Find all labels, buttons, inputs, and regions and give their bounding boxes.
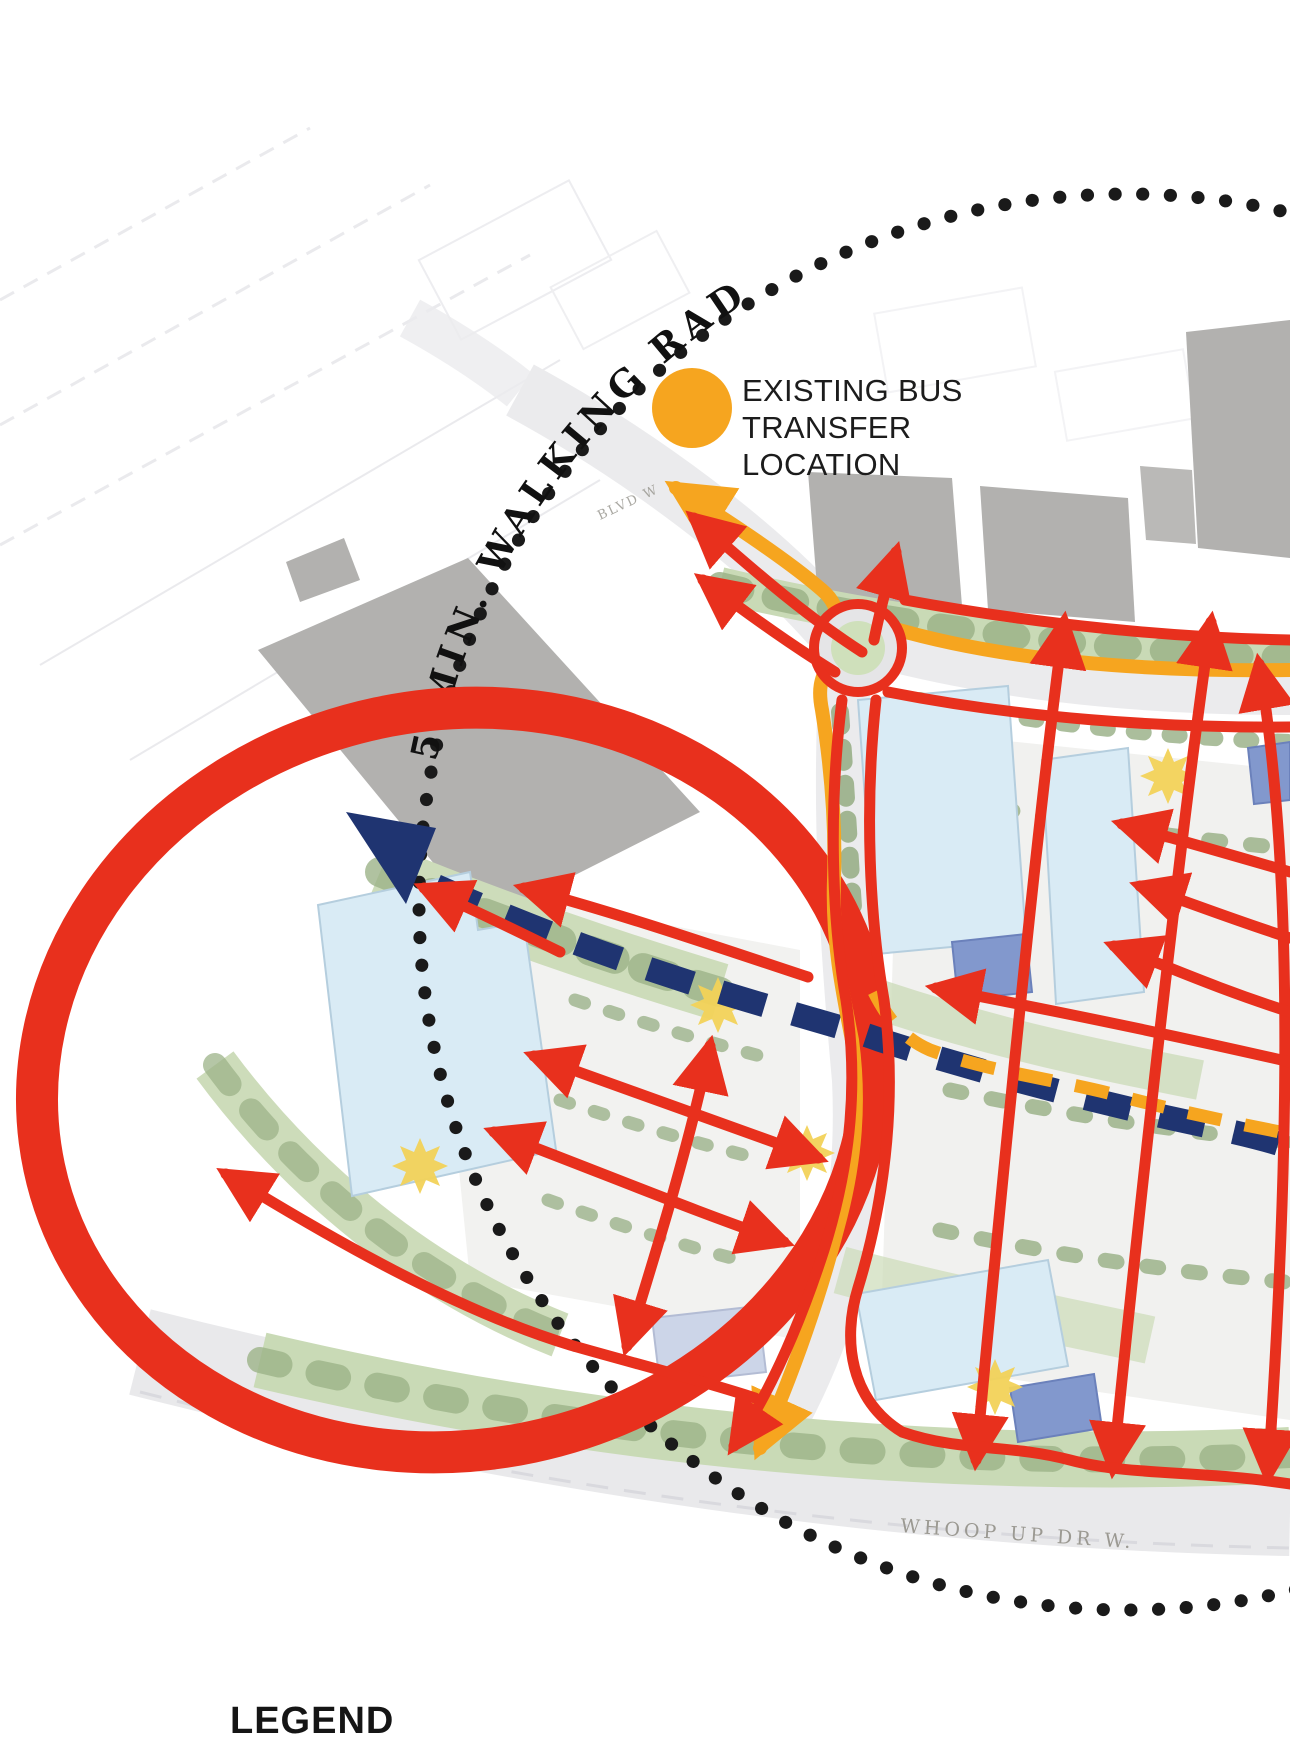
bus-transfer-label-line: TRANSFER — [742, 409, 1002, 446]
map-canvas: BLVD W 5 MIN. WALKING RADIUS WHOOP UP DR… — [0, 0, 1290, 1762]
bus-transfer-label: EXISTING BUS TRANSFER LOCATION — [742, 372, 1002, 483]
building-footprint — [1042, 748, 1144, 1004]
legend-title: LEGEND — [230, 1700, 394, 1743]
bus-transfer-label-line: EXISTING BUS — [742, 372, 1002, 409]
bus-transfer-label-line: LOCATION — [742, 446, 1002, 483]
site-plan-map: BLVD W 5 MIN. WALKING RADIUS WHOOP UP DR… — [0, 0, 1290, 1762]
building-footprint — [858, 686, 1026, 954]
